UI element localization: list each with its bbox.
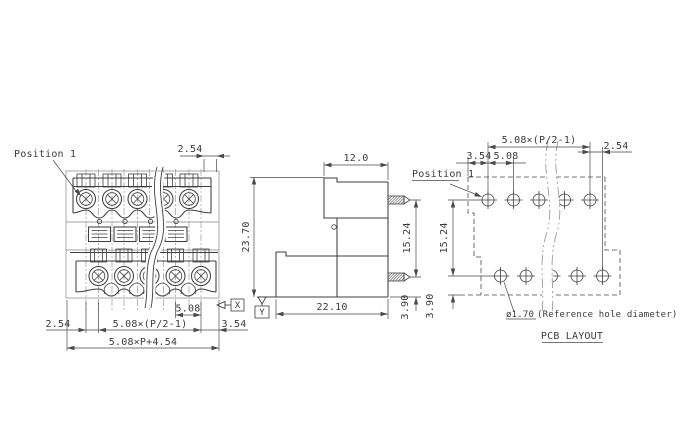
pcb-title: PCB LAYOUT xyxy=(541,331,603,343)
position-label: Position 1 xyxy=(14,149,76,160)
dim-pin-row-spacing: 15.24 xyxy=(402,222,413,253)
dimension-arrow xyxy=(381,163,389,167)
dimension-arrow xyxy=(583,145,591,149)
pcb-break-line xyxy=(542,141,560,313)
pcb-hole xyxy=(492,267,510,285)
dim-pcb-pin-pitch: 5.08 xyxy=(494,151,519,162)
dimension-arrow xyxy=(217,154,225,158)
dimension-arrow xyxy=(324,163,332,167)
dimension-arrow xyxy=(451,200,455,208)
dim-pin-to-bottom: 3.90 xyxy=(400,295,411,320)
pcb-body-outline xyxy=(460,177,620,295)
dimension-arrow xyxy=(79,328,87,332)
dimension-arrow xyxy=(99,328,107,332)
dim-overall-depth: 22.10 xyxy=(316,302,347,313)
dimension-arrow xyxy=(67,346,75,350)
dimension-arrow xyxy=(381,312,389,316)
front-position-label: Position 1 xyxy=(14,149,79,195)
datum-y-triangle-icon xyxy=(258,297,266,304)
front-view: 2.54 5.08 5.08×(P/2-1) 2.54 3.54 5.08×P+… xyxy=(14,144,248,351)
dimension-arrow xyxy=(212,346,220,350)
screw-terminal xyxy=(128,190,147,209)
dim-top-pitch-offset: 2.54 xyxy=(178,144,203,155)
dim-pitch-group: 5.08×(P/2-1) xyxy=(113,319,188,330)
hole-diameter-note: (Reference hole diameter) xyxy=(537,310,677,320)
dimension-arrow xyxy=(414,270,418,278)
plug-opening xyxy=(89,219,111,241)
datum-x-arrow-icon xyxy=(217,302,225,309)
position-label: Position 1 xyxy=(412,169,474,180)
front-bottom-block xyxy=(70,249,218,296)
dim-overall-height: 23.70 xyxy=(241,221,252,252)
view-title: PCB LAYOUT xyxy=(541,331,603,342)
dimension-arrow xyxy=(488,145,496,149)
datum-y-label: Y xyxy=(259,308,265,318)
side-profile xyxy=(257,178,388,297)
pcb-hole-note: ø1.70 (Reference hole diameter) xyxy=(504,282,677,320)
datum-x: X xyxy=(217,299,244,311)
dimension-arrow xyxy=(75,189,83,198)
dim-pcb-pitch-group: 5.08×(P/2-1) xyxy=(502,135,577,146)
dimension-arrow xyxy=(252,290,256,298)
pcb-hole xyxy=(517,267,535,285)
dim-pcb-row-to-edge: 3.90 xyxy=(425,294,436,319)
dim-top-width: 12.0 xyxy=(344,153,369,164)
pcb-dimensions: 5.08×(P/2-1) 2.54 3.54 5.08 15.24 3.90 xyxy=(425,135,632,318)
pcb-layout-view: 5.08×(P/2-1) 2.54 3.54 5.08 15.24 3.90 P… xyxy=(412,135,677,343)
hole-diameter-value: ø1.70 xyxy=(506,310,534,320)
terminal-block-drawing: 2.54 5.08 5.08×(P/2-1) 2.54 3.54 5.08×P+… xyxy=(0,0,680,440)
dimension-arrow xyxy=(252,177,256,185)
side-view: 12.0 23.70 15.24 3.90 22.10 Y xyxy=(241,153,421,319)
plug-opening xyxy=(165,219,187,241)
dim-pin-pitch: 5.08 xyxy=(176,304,201,315)
screw-terminal xyxy=(192,267,211,286)
datum-y: Y xyxy=(255,297,269,318)
dimension-arrow xyxy=(414,297,418,305)
dim-pcb-row-end-offset: 2.54 xyxy=(604,141,629,152)
dim-left-offset: 2.54 xyxy=(46,319,71,330)
dimension-arrow xyxy=(474,192,483,199)
dimension-arrow xyxy=(451,295,455,303)
dimension-arrow xyxy=(194,328,202,332)
pcb-hole xyxy=(568,267,586,285)
dimension-arrow xyxy=(276,312,284,316)
screw-terminal xyxy=(89,267,108,286)
pcb-position-label: Position 1 xyxy=(412,169,480,196)
pcb-hole xyxy=(530,191,548,209)
dimension-arrow xyxy=(451,269,455,277)
plug-opening xyxy=(114,219,136,241)
dim-pcb-edge-offset: 3.54 xyxy=(467,151,492,162)
screw-terminal xyxy=(166,267,185,286)
dim-overall-width: 5.08×P+4.54 xyxy=(109,337,177,348)
screw-terminal xyxy=(180,190,199,209)
datum-x-label: X xyxy=(235,301,241,311)
screw-terminal xyxy=(103,190,122,209)
dimension-arrow xyxy=(583,150,591,154)
dim-pcb-row-spacing: 15.24 xyxy=(439,222,450,253)
front-top-block xyxy=(73,174,211,218)
dimension-arrow xyxy=(414,200,418,208)
screw-terminal xyxy=(115,267,134,286)
technical-drawing-page: 2.54 5.08 5.08×(P/2-1) 2.54 3.54 5.08×P+… xyxy=(0,0,680,440)
